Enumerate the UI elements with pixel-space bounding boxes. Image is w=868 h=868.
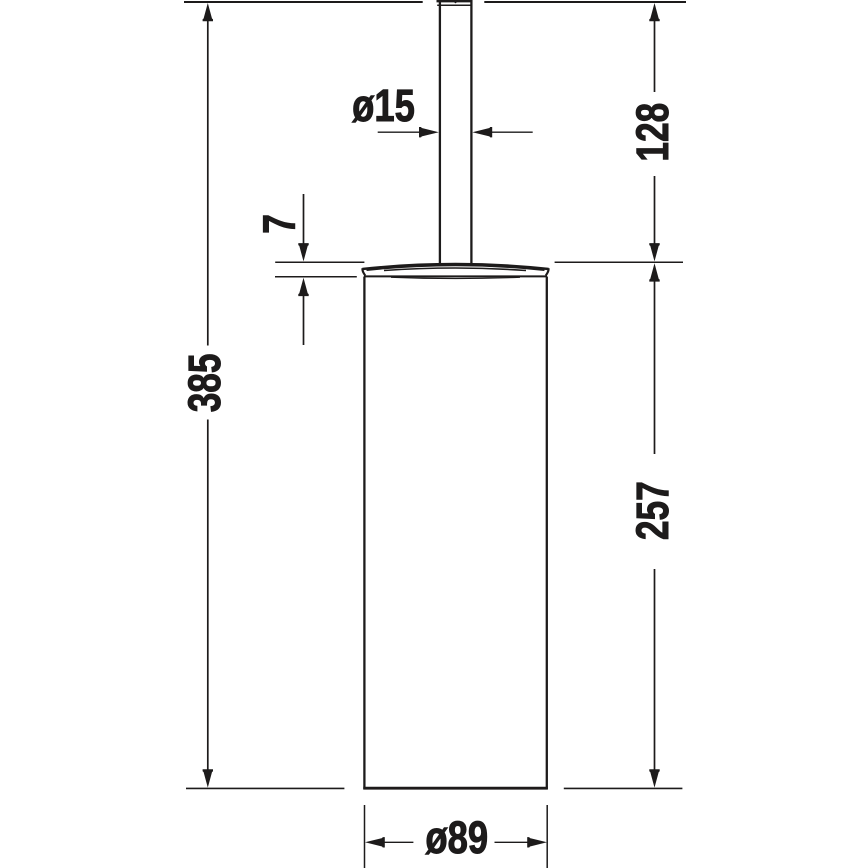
svg-text:385: 385 (179, 354, 230, 413)
svg-text:7: 7 (253, 214, 304, 234)
svg-text:128: 128 (627, 103, 678, 162)
svg-text:ø89: ø89 (425, 812, 488, 863)
svg-text:ø15: ø15 (352, 80, 415, 131)
svg-text:257: 257 (627, 481, 678, 540)
